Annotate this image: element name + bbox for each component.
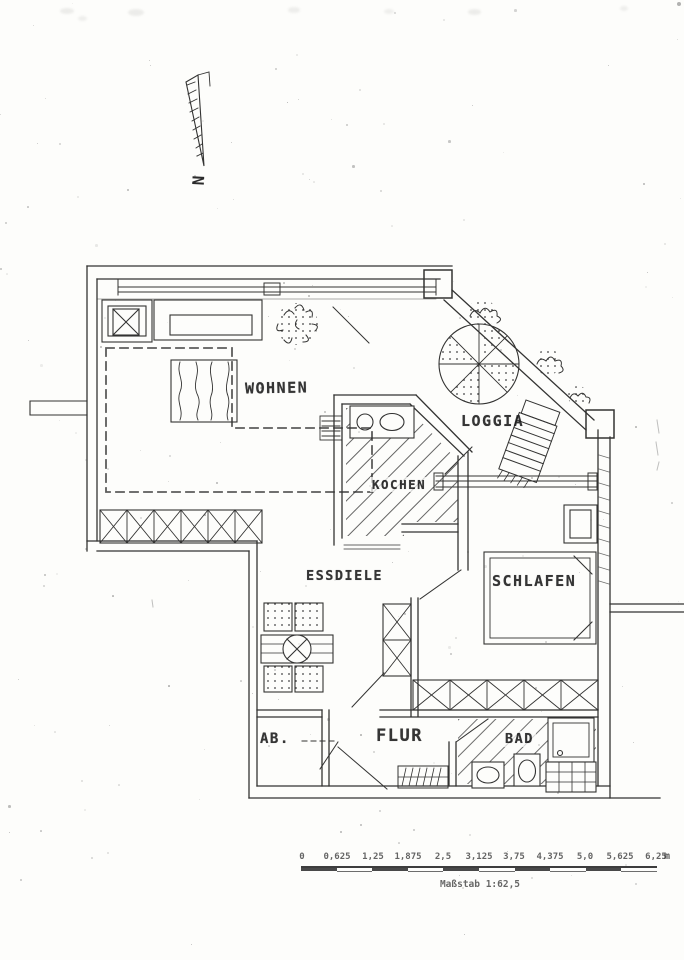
north-letter: N: [188, 175, 207, 186]
door-swing: [420, 570, 461, 599]
wohnen-furniture: [100, 300, 372, 543]
plant-icon: [276, 303, 318, 345]
closet-icon: [383, 604, 411, 676]
room-label-flur: FLUR: [376, 726, 423, 746]
sideboard-icon: [154, 300, 262, 340]
scan-smudge: [78, 16, 87, 21]
chair-icon: [264, 603, 292, 631]
scale-tick: 1,875: [394, 852, 421, 862]
schlafen-furniture: [413, 505, 598, 710]
dining-table-icon: [261, 635, 333, 663]
rug-outline: [106, 348, 372, 492]
pillar: [424, 270, 452, 298]
sofa-icon: [171, 360, 237, 422]
bed-icon: [484, 552, 596, 644]
room-label-bad: BAD: [503, 731, 536, 747]
scale-tick: 1,25: [362, 852, 384, 862]
washbasin-icon: [472, 762, 504, 788]
room-label-loggia: LOGGIA: [461, 412, 524, 430]
chair-icon: [264, 666, 292, 692]
room-label-essdiele: ESSDIELE: [306, 568, 383, 584]
scale-tick: 4,375: [536, 852, 563, 862]
loggia-table-icon: [439, 324, 519, 404]
scale-tick: 0,625: [323, 852, 350, 862]
scan-smudge: [288, 7, 300, 13]
plant-icon: [468, 299, 501, 327]
flur-area: [398, 766, 448, 788]
room-label-wohnen: WOHNEN: [245, 378, 308, 397]
scan-smudge: [60, 8, 74, 14]
chair-icon: [295, 666, 323, 692]
room-label-schlafen: SCHLAFEN: [492, 572, 576, 590]
scale-tick: 2,5: [435, 852, 451, 862]
scan-smudge: [128, 9, 144, 16]
north-arrow-icon: [186, 72, 210, 166]
chair-icon: [295, 603, 323, 631]
scale-tick: 5,0: [577, 852, 593, 862]
door-swing: [338, 747, 387, 789]
scan-smudge: [468, 9, 481, 15]
floorplan-drawing: [0, 0, 684, 960]
plant-icon: [535, 349, 590, 406]
room-label-kochen: KOCHEN: [370, 477, 428, 492]
scale-tick: 0: [299, 852, 304, 862]
scale-tick: 5,625: [606, 852, 633, 862]
scan-smudge: [620, 6, 628, 11]
doormat-icon: [398, 766, 448, 788]
floorplan-page: WOHNEN LOGGIA KOCHEN ESSDIELE SCHLAFEN A…: [0, 0, 684, 960]
door-swing: [352, 673, 384, 707]
scale-bar-graphic: [301, 866, 657, 873]
scale-tick: 3,125: [465, 852, 492, 862]
kitchen-area: [320, 406, 458, 536]
scale-tick: 3,75: [503, 852, 525, 862]
bad-area: [458, 718, 596, 792]
essdiele-furniture: [261, 603, 411, 692]
wardrobe-icon: [100, 510, 262, 543]
wardrobe-icon: [413, 680, 598, 710]
bath-shelves-icon: [546, 762, 596, 792]
nightstand-icon: [564, 505, 597, 543]
scan-smudge: [384, 9, 394, 14]
pillar: [586, 410, 614, 438]
scale-caption: Maßstab 1:62,5: [330, 879, 630, 890]
tv-cabinet-icon: [102, 300, 152, 342]
room-label-ab: AB.: [260, 731, 290, 747]
scale-unit: m: [664, 851, 670, 862]
toilet-icon: [514, 754, 540, 786]
door-swing: [333, 307, 369, 343]
kitchen-sink-icon: [350, 406, 414, 438]
shower-icon: [548, 718, 594, 762]
